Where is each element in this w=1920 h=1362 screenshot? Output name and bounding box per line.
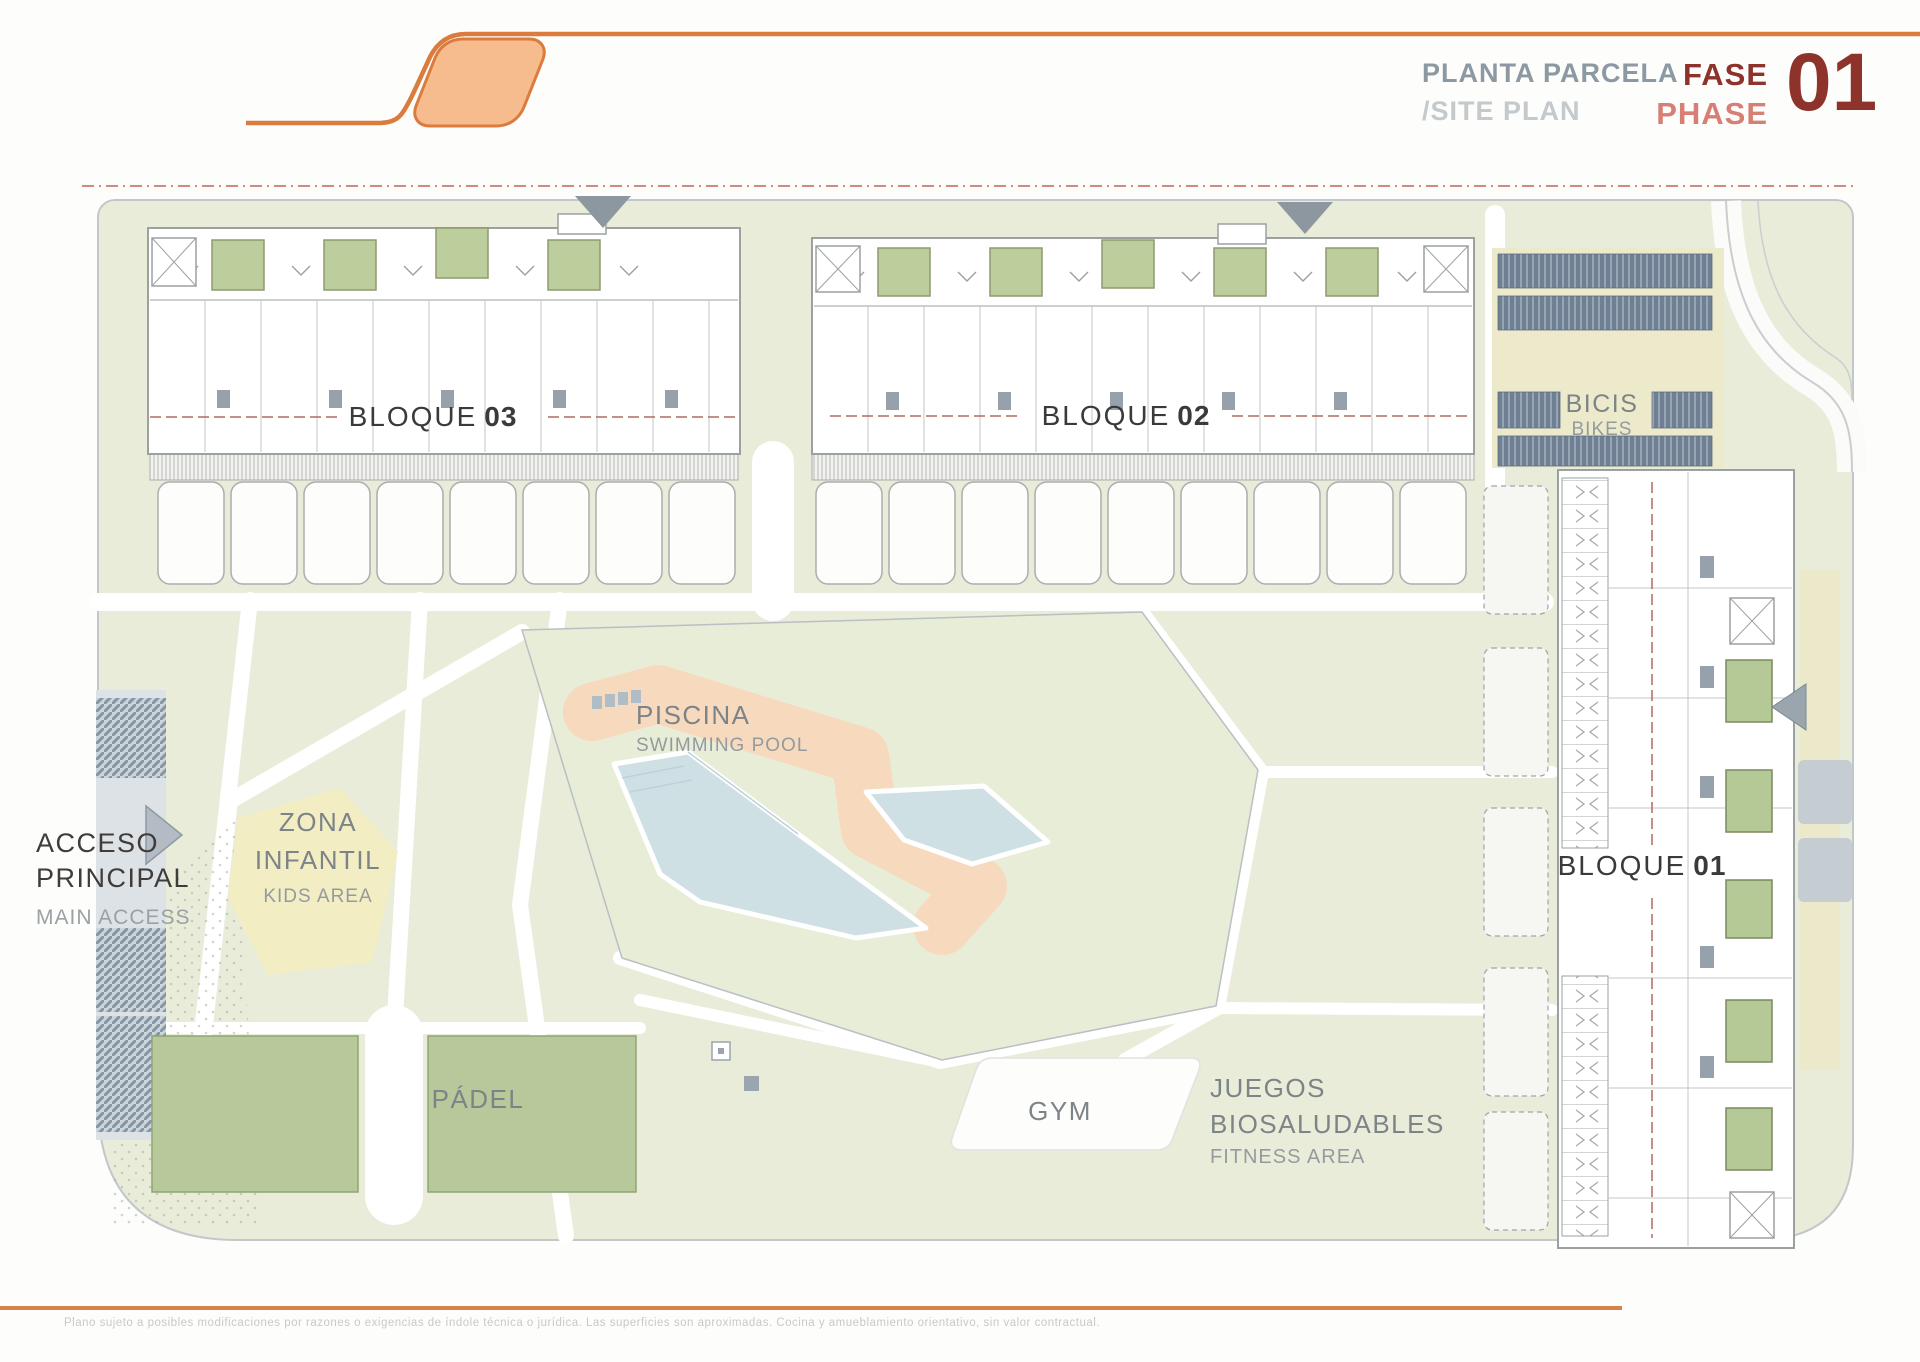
bloque-03-number: 03 [484, 401, 517, 432]
footer-accent-line [0, 1306, 1622, 1310]
kids-line1: ZONA [255, 804, 381, 842]
label-bloque-02: BLOQUE02 [1042, 400, 1211, 432]
label-fitness-area: JUEGOS BIOSALUDABLES FITNESS AREA [1210, 1070, 1445, 1171]
kids-line3: KIDS AREA [255, 883, 381, 911]
label-bloque-03: BLOQUE03 [349, 401, 518, 433]
label-main-access: ACCESO PRINCIPAL MAIN ACCESS [36, 826, 191, 931]
bloque-01-number: 01 [1693, 850, 1726, 881]
terrace-strip-bloque02 [812, 452, 1474, 480]
garden-plots-bloque02 [816, 482, 1466, 584]
pool-en: SWIMMING POOL [636, 733, 808, 759]
bikes-en: BIKES [1566, 419, 1639, 441]
kids-line2: INFANTIL [255, 842, 381, 880]
terrace-strip-bloque03 [150, 452, 738, 480]
plan-title-en: /SITE PLAN [1422, 96, 1581, 127]
access-line1: ACCESO [36, 826, 191, 861]
label-bloque-01: BLOQUE01 [1558, 850, 1727, 882]
bloque-01-word: BLOQUE [1558, 850, 1687, 881]
label-bikes: BICIS BIKES [1566, 390, 1639, 441]
access-line2: PRINCIPAL [36, 861, 191, 896]
fitness-line3: FITNESS AREA [1210, 1143, 1445, 1171]
fitness-line2: BIOSALUDABLES [1210, 1106, 1445, 1142]
site-plan-drawing [0, 0, 1920, 1362]
fitness-line1: JUEGOS [1210, 1070, 1445, 1106]
pool-es: PISCINA [636, 698, 808, 733]
label-gym: GYM [1028, 1096, 1092, 1127]
phase-number: 01 [1786, 42, 1877, 124]
access-line3: MAIN ACCESS [36, 904, 191, 931]
label-pool: PISCINA SWIMMING POOL [636, 698, 808, 759]
phase-label-en: PHASE [1656, 96, 1768, 132]
bloque-03-word: BLOQUE [349, 401, 478, 432]
bloque-02-word: BLOQUE [1042, 400, 1171, 431]
site-plan-page: PLANTA PARCELA /SITE PLAN FASE PHASE 01 … [0, 0, 1920, 1362]
legal-disclaimer: Plano sujeto a posibles modificaciones p… [64, 1317, 1100, 1329]
plan-title-es: PLANTA PARCELA [1422, 58, 1679, 89]
phase-label-es: FASE [1683, 57, 1768, 93]
label-padel: PÁDEL [432, 1084, 525, 1115]
label-kids-area: ZONA INFANTIL KIDS AREA [255, 804, 381, 911]
bloque-02-number: 02 [1177, 400, 1210, 431]
bikes-es: BICIS [1566, 390, 1639, 419]
